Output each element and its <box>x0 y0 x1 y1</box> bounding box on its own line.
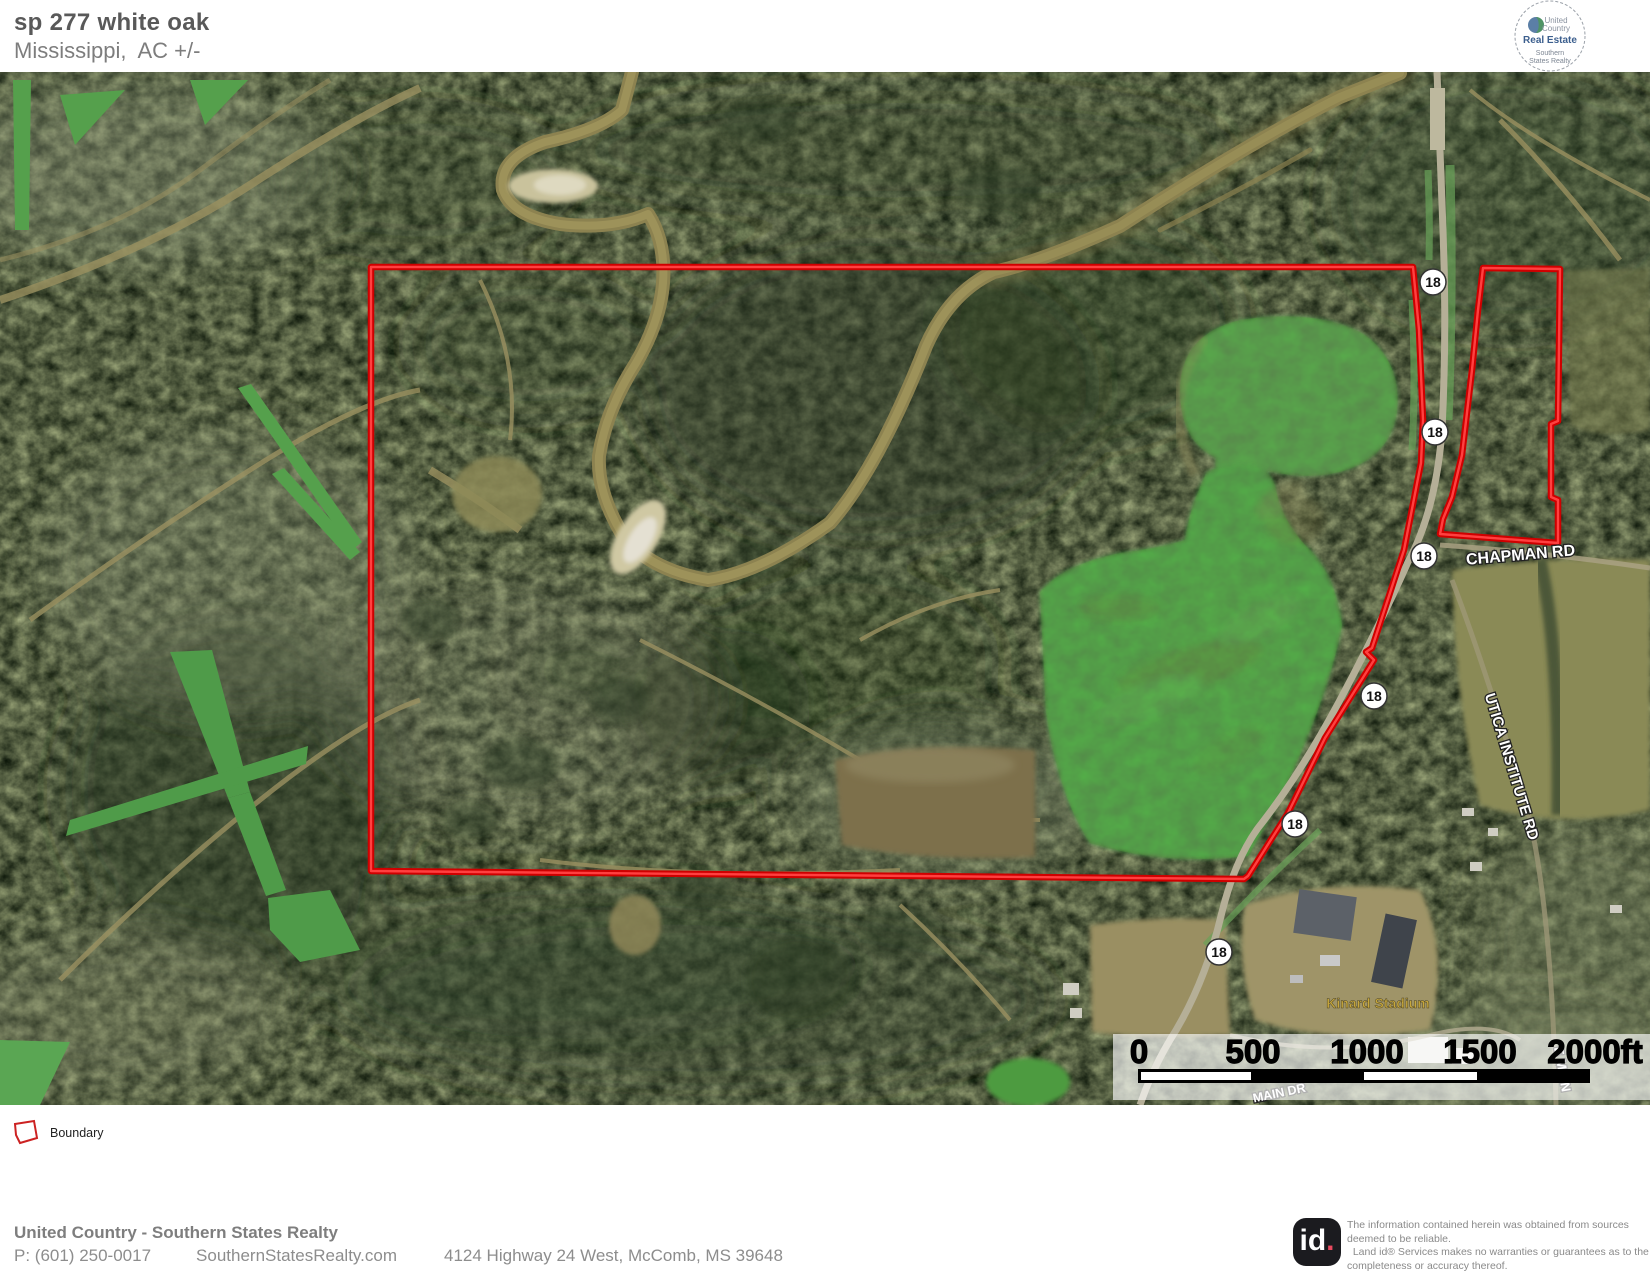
svg-text:States Realty: States Realty <box>1529 58 1571 65</box>
svg-text:0: 0 <box>1130 1033 1148 1070</box>
svg-text:Country: Country <box>1542 24 1570 33</box>
svg-text:Southern: Southern <box>1536 50 1565 57</box>
svg-text:18: 18 <box>1211 944 1227 960</box>
svg-text:2000ft: 2000ft <box>1547 1033 1642 1070</box>
svg-text:18: 18 <box>1425 274 1441 290</box>
svg-text:18: 18 <box>1287 816 1303 832</box>
svg-text:18: 18 <box>1366 688 1382 704</box>
svg-text:1000: 1000 <box>1330 1033 1403 1070</box>
svg-text:18: 18 <box>1427 424 1443 440</box>
svg-text:500: 500 <box>1225 1033 1280 1070</box>
svg-text:18: 18 <box>1416 548 1432 564</box>
svg-text:1500: 1500 <box>1443 1033 1516 1070</box>
svg-text:Real Estate: Real Estate <box>1523 35 1577 46</box>
svg-text:Kinard Stadium: Kinard Stadium <box>1326 995 1429 1011</box>
